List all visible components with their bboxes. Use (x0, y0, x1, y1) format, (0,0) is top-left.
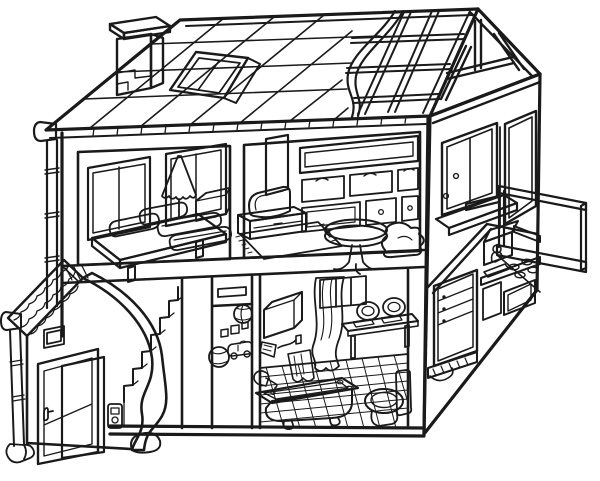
toy-alcove (209, 305, 252, 367)
table-with-seats (342, 298, 418, 358)
under-sink-cabinet (483, 282, 501, 320)
fridge-drawer-lines (438, 287, 473, 325)
downpipe-foot (6, 444, 34, 462)
tv (249, 135, 290, 217)
drawer-2 (350, 171, 392, 196)
shower-head (260, 342, 276, 357)
wall-unit (300, 136, 418, 232)
doorbell-panel (108, 404, 122, 428)
drawer-1 (302, 176, 344, 202)
toy-blocks (221, 322, 248, 337)
gutter-downpipe (34, 122, 59, 308)
seat-back-1-hole (362, 306, 374, 315)
skylight-flap (224, 58, 260, 103)
window-latch-1 (454, 174, 459, 179)
chimney (110, 17, 170, 95)
scallop-row-3 (31, 286, 78, 334)
toy-car (228, 341, 252, 359)
base-band (110, 426, 424, 436)
fridge (434, 270, 477, 366)
gable-strut-left (441, 46, 471, 100)
doorbell-button (112, 417, 118, 423)
cabinet-mid-knob (379, 210, 384, 215)
chimney-brick-lines (117, 70, 151, 90)
skylight-mullion (198, 61, 219, 90)
sill-front (449, 203, 517, 235)
wall-vent-slot (218, 287, 246, 297)
seat-back-1 (357, 302, 379, 320)
facade-right-edge (424, 118, 428, 434)
cabinet-right-knob (408, 206, 412, 210)
stand-drawer (254, 221, 302, 228)
cabinet-left (302, 202, 360, 232)
cabinet-right (402, 196, 418, 221)
box-outline (264, 292, 302, 338)
table-pedestal (334, 245, 378, 274)
gable-framing (430, 9, 540, 123)
platform-bed (92, 203, 231, 282)
staircase-steps (124, 287, 178, 402)
right-side-wall (424, 74, 586, 434)
balcony-corner-post (581, 203, 586, 270)
dollhouse-drawing: Cutaway dollhouse line drawing (coloring… (0, 0, 600, 481)
glass-door-glass (509, 117, 532, 218)
beanbag-crease (398, 236, 412, 240)
rafter-1 (358, 12, 411, 114)
shower-arm (278, 340, 296, 348)
awning-face (8, 260, 83, 336)
open-shelf (300, 136, 418, 173)
balcony-top-rail (499, 186, 586, 210)
tv-stand (238, 207, 306, 239)
shower-face-lines (263, 345, 272, 351)
curtain (312, 277, 344, 371)
purlin-2 (346, 64, 452, 73)
seat-back-2-hole (388, 302, 400, 311)
illustration-canvas: Cutaway dollhouse line drawing (coloring… (0, 0, 600, 481)
fridge-knob-2 (442, 307, 445, 310)
tv-screen-line (255, 191, 283, 210)
purlin-3 (351, 34, 465, 43)
glass-door (500, 111, 536, 228)
shower-bracket (296, 335, 301, 344)
table-rim (325, 226, 387, 247)
doorbell-window (111, 408, 119, 414)
faucet-drip (271, 392, 275, 395)
porch-downpipe (10, 329, 24, 446)
curtain-folds (321, 279, 332, 340)
small-wall-window (44, 326, 64, 348)
seat-back-2 (383, 298, 405, 316)
door-handle (44, 408, 53, 420)
king-post (475, 20, 481, 70)
bathroom (254, 276, 418, 429)
hall-wall-band (182, 277, 212, 428)
bathroom-left-wall (252, 275, 260, 428)
balcony-near-post (499, 191, 504, 247)
door-panel-lines (44, 358, 92, 456)
chimney-body-front (117, 34, 151, 95)
wall-shelf (514, 226, 540, 242)
curtained-window (312, 276, 366, 390)
fridge-knob-3 (442, 319, 445, 322)
drawer-3 (398, 168, 418, 191)
table-top (325, 220, 387, 241)
tub-faucet (254, 371, 277, 388)
chimney-cap-front (110, 24, 124, 39)
scalloped-awning (8, 260, 83, 336)
banister-wall (83, 273, 166, 450)
wall-box-shelf (264, 292, 302, 338)
fridge-knob-1 (442, 295, 445, 298)
